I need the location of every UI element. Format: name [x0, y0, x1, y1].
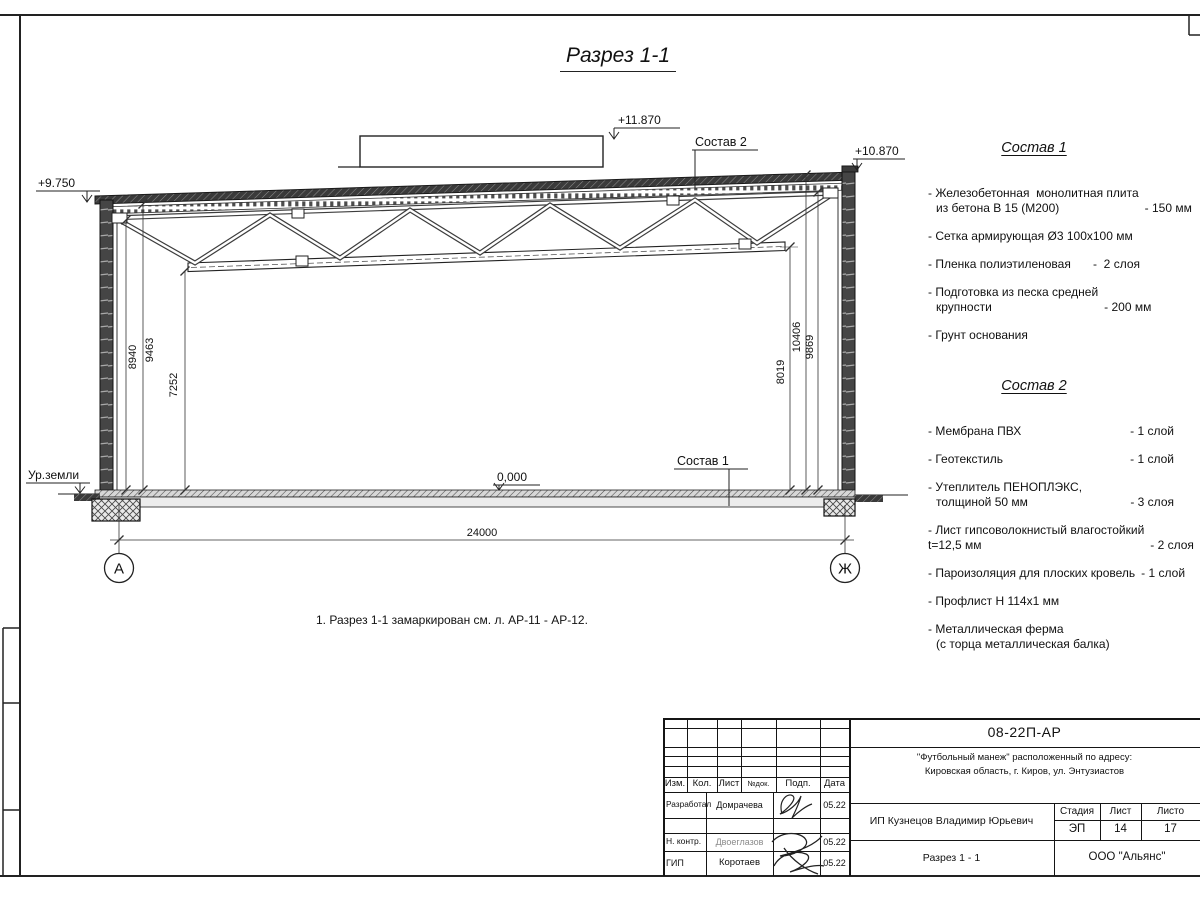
date-developer: 05.22: [820, 792, 849, 818]
col-data: Дата: [820, 777, 849, 792]
list-item: - Железобетонная монолитная плита из бет…: [928, 186, 1140, 216]
item-value: - 150 мм: [1139, 201, 1192, 216]
sheets-total: 17: [1141, 820, 1200, 840]
stage-value: ЭП: [1054, 820, 1100, 840]
dim-10406: 10406: [791, 322, 803, 353]
item-text: - Железобетонная монолитная плита: [928, 186, 1139, 201]
company-name: ООО "Альянс": [1054, 840, 1200, 876]
signature-developer: [768, 788, 823, 822]
layer1-callout: Состав 1: [677, 454, 729, 468]
dim-24000: 24000: [467, 527, 498, 539]
sheet-label: Лист: [1100, 803, 1141, 820]
span-dimension: 24000: [110, 505, 854, 553]
right-wall: [838, 166, 858, 490]
list-item: - Подготовка из песка средней крупности …: [928, 285, 1140, 315]
signature-gip: [762, 826, 830, 878]
item-text2: крупности: [928, 300, 1098, 315]
dim-9463: 9463: [144, 338, 156, 362]
drawing-note: 1. Разрез 1-1 замаркирован см. л. АР-11 …: [316, 613, 588, 627]
axis-circle-right: Ж: [831, 554, 860, 583]
item-text: - Пароизоляция для плоских кровель: [928, 566, 1135, 581]
item-text2: (с торца металлическая балка): [928, 637, 1110, 652]
list-item: - Утеплитель ПЕНОПЛЭКС, толщиной 50 мм -…: [928, 480, 1174, 510]
vertical-dimensions: [122, 171, 823, 495]
list-item: - Металлическая ферма (с торца металличе…: [928, 622, 1174, 652]
item-text: - Мембрана ПВХ: [928, 424, 1021, 439]
list-item: - Лист гипсоволокнистый влагостойкий t=1…: [928, 523, 1174, 553]
item-text2: толщиной 50 мм: [928, 495, 1082, 510]
client-name: ИП Кузнецов Владимир Юрьевич: [849, 803, 1054, 840]
role-developer: Разработал: [664, 792, 706, 818]
page-title: Разрез 1-1: [560, 44, 676, 72]
col-list: Лист: [717, 777, 741, 792]
elev-roof-left: +9.750: [38, 176, 75, 190]
item-value: - 200 мм: [1098, 300, 1151, 315]
item-text: - Грунт основания: [928, 328, 1028, 343]
list-item: - Пароизоляция для плоских кровель - 1 с…: [928, 566, 1174, 581]
sheets-label: Листо: [1141, 803, 1200, 820]
elev-box-top: +11.870: [618, 113, 661, 127]
item-value: - 2 слоя: [1087, 257, 1140, 272]
list-item: - Мембрана ПВХ - 1 слой: [928, 424, 1174, 439]
roof: [95, 172, 855, 218]
elev-roof-right: +10.870: [855, 144, 899, 158]
project-name-line1: "Футбольный манеж" расположенный по адре…: [849, 751, 1200, 765]
item-value: - 1 слой: [1124, 424, 1174, 439]
item-text: - Пленка полиэтиленовая: [928, 257, 1071, 272]
svg-text:А: А: [114, 561, 124, 578]
doc-number: 08-22П-АР: [849, 718, 1200, 747]
item-text: - Геотекстиль: [928, 452, 1003, 467]
item-text: - Профлист Н 114х1 мм: [928, 594, 1059, 609]
item-value: - 1 слой: [1135, 566, 1185, 581]
item-text2: t=12,5 мм: [928, 538, 1144, 553]
rooftop-unit: [338, 136, 603, 167]
item-text: - Сетка армирующая Ø3 100х100 мм: [928, 229, 1133, 244]
axis-circle-left: А: [105, 554, 134, 583]
item-text: - Лист гипсоволокнистый влагостойкий: [928, 523, 1144, 538]
sheet-number: 14: [1100, 820, 1141, 840]
list-item: - Профлист Н 114х1 мм: [928, 594, 1174, 609]
list-item: - Грунт основания: [928, 328, 1140, 343]
col-kol: Кол.: [687, 777, 717, 792]
elevation-labels: +9.750 +11.870 +10.870 0,000 Ур.земли: [28, 113, 899, 484]
svg-text:Ж: Ж: [838, 561, 852, 578]
project-name: "Футбольный манеж" расположенный по адре…: [849, 751, 1200, 780]
sostav2-title: Состав 2: [928, 378, 1140, 394]
elev-floor: 0,000: [497, 470, 527, 484]
sostav1-title: Состав 1: [928, 140, 1140, 156]
left-wall: [100, 200, 117, 490]
item-text: - Подготовка из песка средней: [928, 285, 1098, 300]
stage-label: Стадия: [1054, 803, 1100, 820]
floor-slab: [95, 490, 855, 507]
col-izm: Изм.: [663, 777, 687, 792]
dim-7252: 7252: [168, 373, 180, 397]
list-item: - Сетка армирующая Ø3 100х100 мм: [928, 229, 1140, 244]
item-value: - 2 слоя: [1144, 538, 1194, 553]
item-value: - 1 слой: [1124, 452, 1174, 467]
role-gip: ГИП: [664, 851, 706, 876]
ground-level-label: Ур.земли: [28, 468, 79, 482]
vertical-dimension-labels: 8940 9463 7252 8019 10406 9869: [127, 322, 816, 398]
list-item: - Геотекстиль - 1 слой: [928, 452, 1174, 467]
project-name-line2: Кировская область, г. Киров, ул. Энтузиа…: [849, 765, 1200, 779]
sostav2-list: Состав 2 - Мембрана ПВХ - 1 слой - Геоте…: [928, 378, 1174, 652]
drawing-sheet: 8940 9463 7252 8019 10406 9869 24000 А Ж: [0, 0, 1200, 900]
sostav1-list: Состав 1 - Железобетонная монолитная пли…: [928, 140, 1140, 343]
item-text: - Металлическая ферма: [928, 622, 1110, 637]
role-ncontrol: Н. контр.: [664, 833, 706, 851]
dim-8019: 8019: [775, 360, 787, 384]
dim-8940: 8940: [127, 345, 139, 369]
foundation-left: [92, 499, 140, 521]
item-text: - Утеплитель ПЕНОПЛЭКС,: [928, 480, 1082, 495]
sheet-title: Разрез 1 - 1: [849, 840, 1054, 876]
item-value: - 3 слоя: [1124, 495, 1174, 510]
item-text2: из бетона В 15 (М200): [928, 201, 1139, 216]
name-developer: Домрачева: [706, 792, 773, 818]
dim-9869: 9869: [804, 335, 816, 359]
list-item: - Пленка полиэтиленовая - 2 слоя: [928, 257, 1140, 272]
foundation-right: [824, 499, 855, 516]
layer2-callout: Состав 2: [695, 135, 747, 149]
